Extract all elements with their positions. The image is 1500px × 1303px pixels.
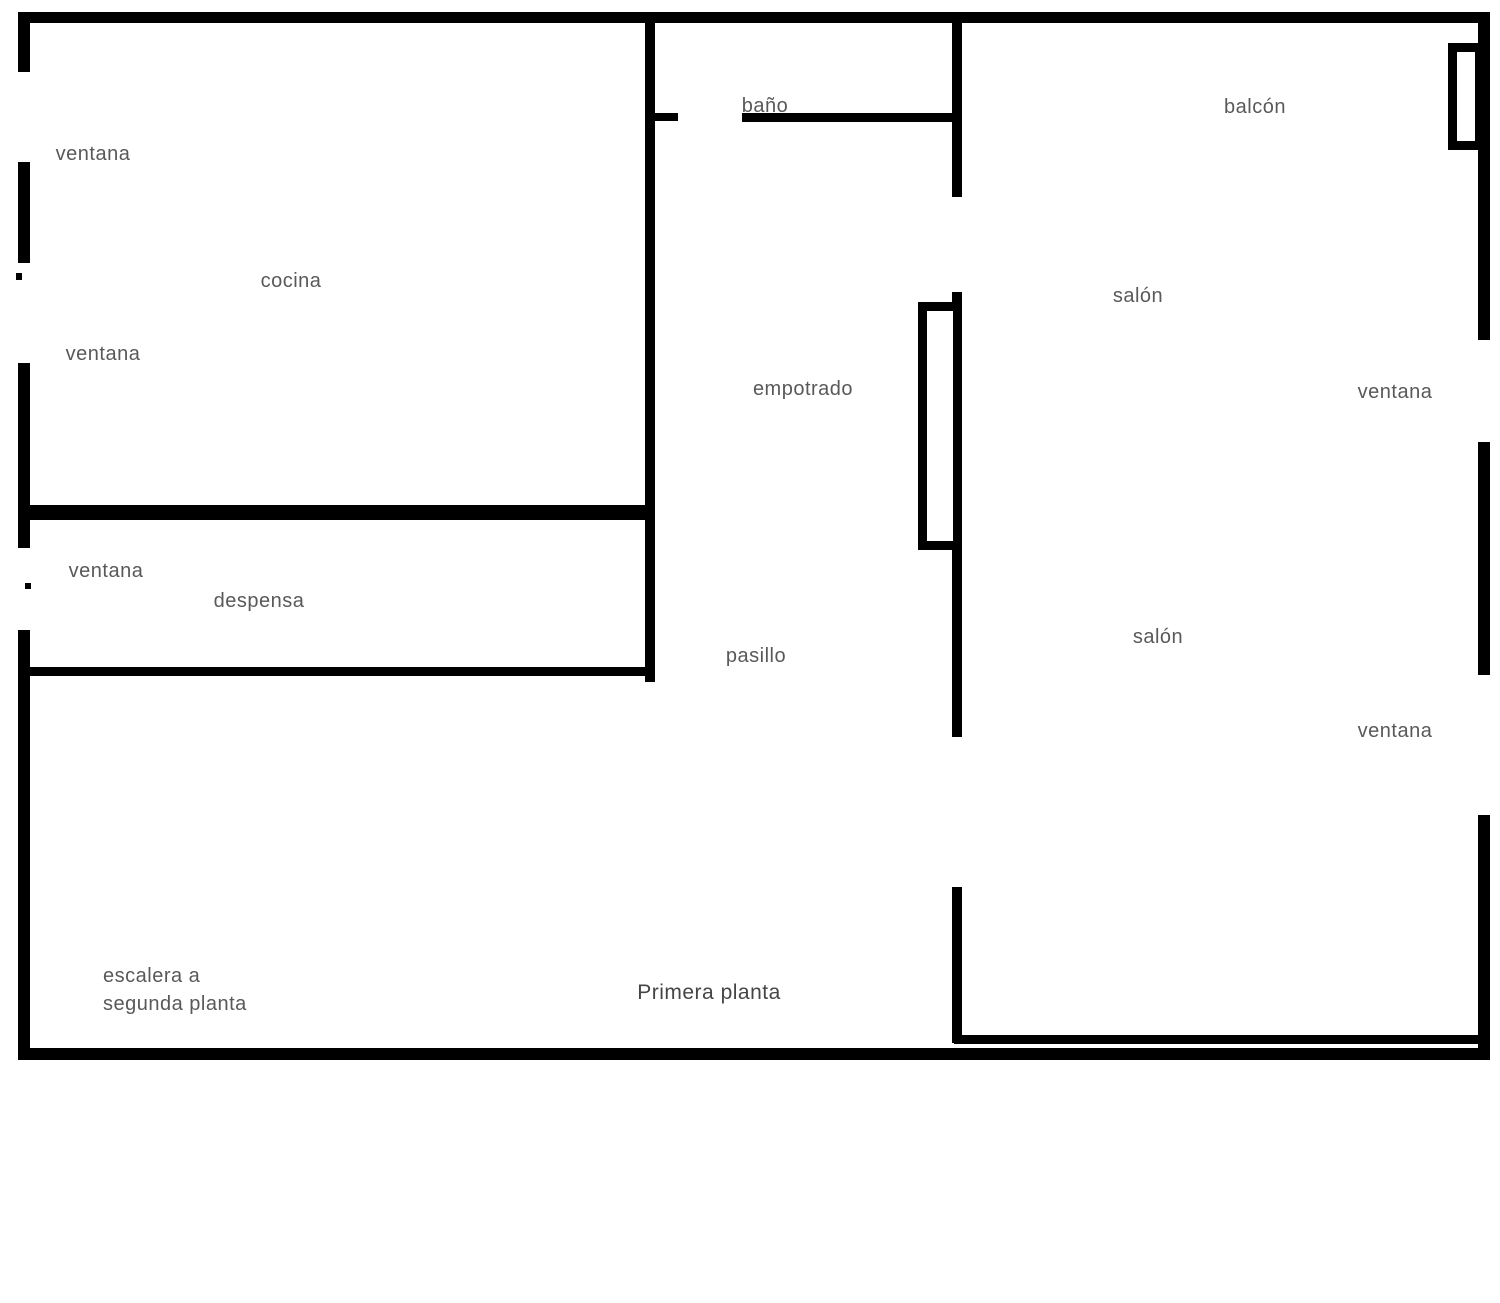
- balcon-window-fixture: [1448, 43, 1484, 150]
- wall-outer-bottom: [18, 1048, 1490, 1060]
- label-despensa: despensa: [214, 587, 305, 615]
- empotrado-closet: [918, 302, 962, 550]
- wall-mark-2: [25, 583, 31, 589]
- label-empotrado: empotrado: [753, 375, 853, 403]
- wall-kitchen-bottom: [18, 505, 655, 520]
- wall-hall-right-top: [952, 12, 962, 197]
- label-salon-1: salón: [1113, 282, 1163, 310]
- wall-bath-bottom-stub: [645, 113, 678, 121]
- label-primera-planta: Primera planta: [637, 979, 781, 1007]
- wall-outer-top: [18, 12, 1490, 23]
- label-salon-2: salón: [1133, 623, 1183, 651]
- wall-outer-right-c: [1478, 815, 1490, 1058]
- wall-outer-left-a: [18, 12, 30, 72]
- label-ventana-left-3: ventana: [69, 557, 144, 585]
- wall-pantry-bottom: [18, 667, 655, 676]
- label-bano: baño: [742, 92, 789, 120]
- label-escalera: escalera a segunda planta: [103, 962, 247, 1018]
- floor-plan: ventanaventanaventanacocinadespensabañoe…: [0, 0, 1500, 1303]
- wall-outer-left-c: [18, 363, 30, 548]
- label-cocina: cocina: [261, 267, 322, 295]
- label-pasillo: pasillo: [726, 642, 786, 670]
- label-ventana-left-2: ventana: [66, 340, 141, 368]
- wall-outer-left-b: [18, 162, 30, 263]
- label-balcon: balcón: [1224, 93, 1286, 121]
- label-ventana-right-1: ventana: [1358, 378, 1433, 406]
- wall-outer-left-d: [18, 630, 30, 1058]
- wall-salon-bottom-inner: [954, 1035, 1480, 1044]
- wall-mark-1: [16, 273, 22, 280]
- label-ventana-right-2: ventana: [1358, 717, 1433, 745]
- wall-hall-right-bottom: [952, 887, 962, 1043]
- wall-outer-right-b: [1478, 442, 1490, 675]
- label-ventana-left-1: ventana: [56, 140, 131, 168]
